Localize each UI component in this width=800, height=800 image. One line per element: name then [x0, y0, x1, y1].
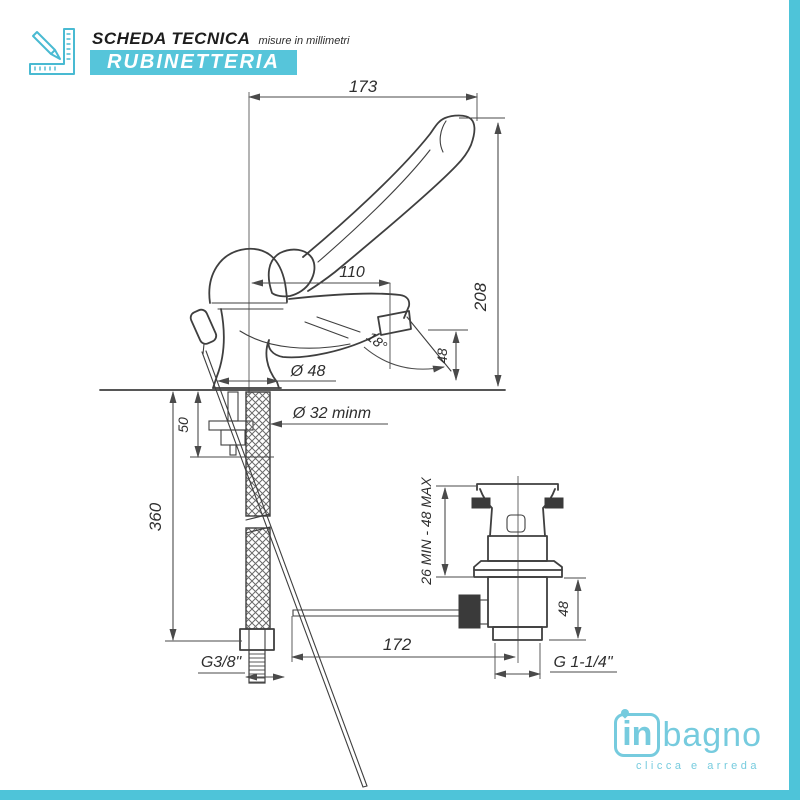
drain-assembly-group	[459, 476, 563, 663]
dim-spout-reach: 110	[339, 264, 365, 281]
inbagno-logo: in bagno clicca e arreda	[614, 713, 762, 772]
faucet-body-group	[189, 92, 475, 396]
dim-shank-depth: 50	[175, 417, 191, 433]
faucet-technical-drawing: 173 208 110 18° 48 Ø 48 Ø 32 minm	[0, 0, 800, 800]
dim-total-height: 208	[471, 282, 490, 312]
label-drain-thread: G 1-1/4"	[553, 654, 613, 671]
label-hose-thread: G3/8"	[201, 654, 243, 671]
logo-tagline: clicca e arreda	[614, 760, 760, 772]
logo-in-text: in	[622, 715, 652, 753]
dim-hole-diameter: Ø 32 minm	[292, 405, 371, 422]
technical-sheet-page: SCHEDA TECNICAmisure in millimetri RUBIN…	[0, 0, 800, 800]
bottom-edge-strip	[0, 790, 800, 800]
dim-rod-length: 172	[383, 635, 412, 654]
logo-word-bagno: bagno	[662, 716, 762, 755]
dim-drain-height: 48	[555, 601, 571, 617]
dim-hose-length: 360	[146, 502, 165, 531]
dim-total-width: 173	[349, 77, 378, 96]
logo-word-in: in	[614, 713, 660, 757]
drain-pull-paddle	[189, 308, 218, 346]
dim-base-diameter: Ø 48	[290, 363, 326, 380]
dim-clamp-range: 26 MIN - 48 MAX	[418, 477, 434, 586]
knurled-knob	[459, 595, 480, 628]
right-edge-strip	[789, 0, 800, 800]
dim-spout-height: 48	[434, 348, 450, 364]
